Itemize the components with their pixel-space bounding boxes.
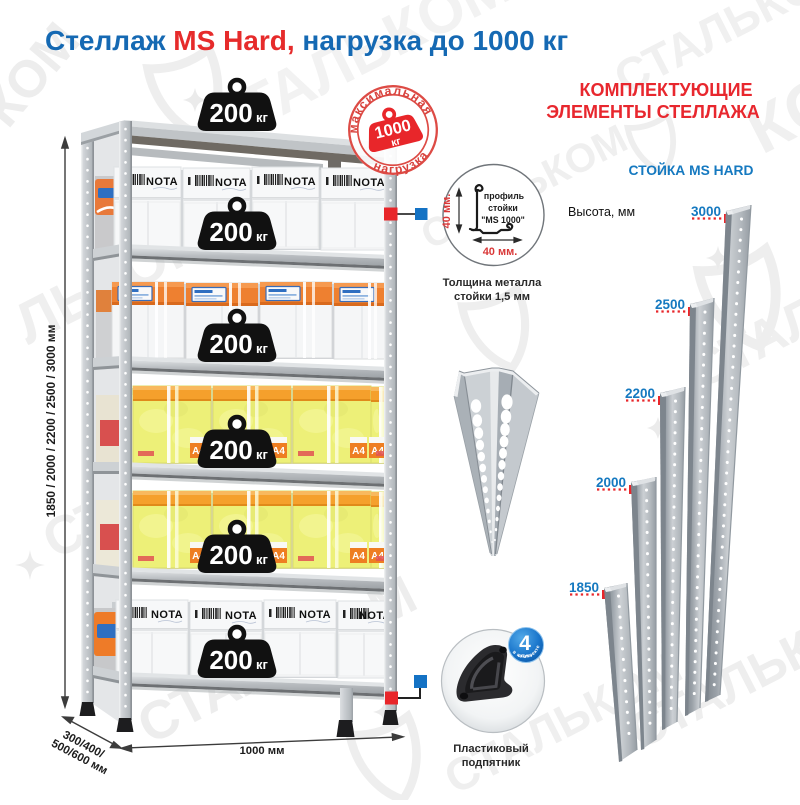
svg-text:СТОЙКА MS HARD: СТОЙКА MS HARD — [629, 161, 754, 178]
svg-text:4: 4 — [519, 632, 531, 655]
svg-text:подпятник: подпятник — [462, 757, 521, 769]
svg-text:NOTA: NOTA — [146, 176, 178, 188]
svg-text:40 мм.: 40 мм. — [441, 194, 453, 229]
svg-text:Стеллаж MS Hard, нагрузка до 1: Стеллаж MS Hard, нагрузка до 1000 кг — [45, 25, 568, 56]
svg-text:Пластиковый: Пластиковый — [453, 743, 529, 755]
svg-text:2000: 2000 — [596, 475, 626, 490]
svg-text:Толщина металла: Толщина металла — [443, 277, 542, 289]
svg-text:A4: A4 — [352, 446, 365, 457]
svg-text:A4: A4 — [352, 551, 365, 562]
svg-text:NOTA: NOTA — [225, 610, 257, 622]
svg-text:"MS 1000": "MS 1000" — [481, 215, 525, 225]
svg-text:стойки: стойки — [488, 203, 518, 213]
svg-text:стойки 1,5 мм: стойки 1,5 мм — [454, 291, 530, 303]
svg-text:NOTA: NOTA — [284, 176, 316, 188]
svg-text:NOTA: NOTA — [151, 609, 183, 621]
svg-text:Высота, мм: Высота, мм — [568, 205, 635, 219]
svg-text:NOTA: NOTA — [215, 177, 247, 189]
svg-text:40 мм.: 40 мм. — [483, 246, 518, 258]
svg-text:1850: 1850 — [569, 580, 599, 595]
svg-text:профиль: профиль — [484, 191, 525, 201]
svg-text:ЭЛЕМЕНТЫ СТЕЛЛАЖА: ЭЛЕМЕНТЫ СТЕЛЛАЖА — [546, 102, 759, 122]
svg-text:2500: 2500 — [655, 297, 685, 312]
svg-text:NOTA: NOTA — [353, 177, 385, 189]
svg-text:2200: 2200 — [625, 386, 655, 401]
svg-text:1850 / 2000 / 2200 / 2500 / 30: 1850 / 2000 / 2200 / 2500 / 3000 мм — [44, 325, 58, 518]
svg-text:КОМПЛЕКТУЮЩИЕ: КОМПЛЕКТУЮЩИЕ — [579, 80, 752, 100]
svg-text:3000: 3000 — [691, 204, 721, 219]
svg-text:NOTA: NOTA — [299, 609, 331, 621]
svg-text:1000 мм: 1000 мм — [240, 745, 285, 757]
